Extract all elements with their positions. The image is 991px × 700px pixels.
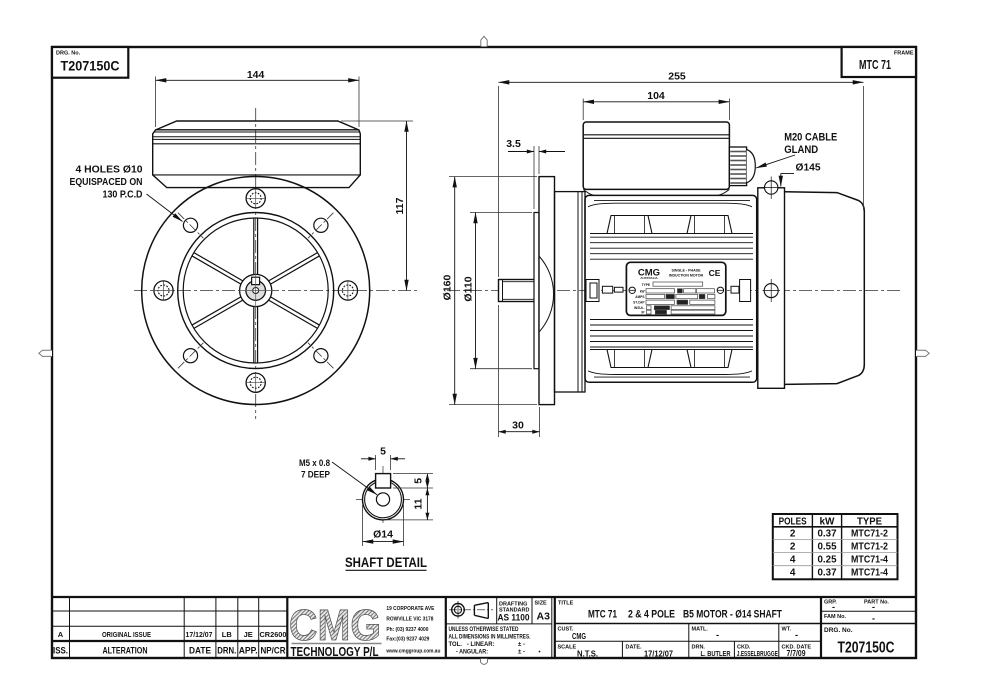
svg-text:19 CORPORATE AVE: 19 CORPORATE AVE xyxy=(386,606,434,612)
svg-text:L. BUTLER: L. BUTLER xyxy=(701,651,731,658)
svg-text:5: 5 xyxy=(380,446,386,458)
svg-text:4: 4 xyxy=(790,568,796,579)
svg-text:WT.: WT. xyxy=(782,627,792,633)
svg-text:INSUL.: INSUL. xyxy=(634,306,645,310)
svg-text:EQUISPACED ON: EQUISPACED ON xyxy=(70,177,143,188)
svg-text:ALL DIMENSIONS IN MILLIMETRES.: ALL DIMENSIONS IN MILLIMETRES. xyxy=(449,635,531,641)
svg-text:M5 x 0.8: M5 x 0.8 xyxy=(299,458,330,469)
svg-text:TOL. - LINEAR:: TOL. - LINEAR: xyxy=(449,642,495,648)
svg-text:TYPE: TYPE xyxy=(857,517,882,528)
svg-text:-: - xyxy=(872,602,875,612)
svg-text:MTC71-2: MTC71-2 xyxy=(851,529,888,540)
svg-text:104: 104 xyxy=(647,90,665,102)
svg-text:DATE.: DATE. xyxy=(626,645,643,651)
svg-text:N.T.S.: N.T.S. xyxy=(577,649,598,659)
svg-text:Ph: (03) 9237 4000: Ph: (03) 9237 4000 xyxy=(386,627,428,633)
svg-text:LB: LB xyxy=(222,630,233,639)
svg-text:B5 MOTOR - Ø14 SHAFT: B5 MOTOR - Ø14 SHAFT xyxy=(683,609,782,621)
svg-text:AS 1100: AS 1100 xyxy=(498,613,530,623)
svg-text:2 & 4 POLE: 2 & 4 POLE xyxy=(628,609,675,621)
svg-text:GRP.: GRP. xyxy=(824,600,837,606)
svg-text:POLES: POLES xyxy=(779,517,807,528)
svg-text:ALTERATION: ALTERATION xyxy=(103,646,148,657)
svg-text:PART No.: PART No. xyxy=(864,600,889,606)
svg-text:M20 CABLE: M20 CABLE xyxy=(784,132,837,144)
svg-text:Ø145: Ø145 xyxy=(796,162,821,174)
svg-text:ROWVILLE VIC 3178: ROWVILLE VIC 3178 xyxy=(386,617,433,623)
svg-text:DRG. No.: DRG. No. xyxy=(824,627,853,634)
svg-text:MTC71-2: MTC71-2 xyxy=(851,542,888,553)
svg-text:17/12/07: 17/12/07 xyxy=(186,630,213,639)
svg-text:J.ESSELBRUGGE: J.ESSELBRUGGE xyxy=(737,651,778,658)
svg-text:± -: ± - xyxy=(518,642,525,648)
svg-text:FRAME: FRAME xyxy=(894,51,914,57)
svg-text:0.55: 0.55 xyxy=(818,542,837,553)
svg-text:Ø14: Ø14 xyxy=(373,529,393,541)
svg-text:5: 5 xyxy=(413,478,425,484)
svg-text:SCALE: SCALE xyxy=(558,645,577,651)
svg-text:Ø160: Ø160 xyxy=(442,274,454,300)
svg-text:-: - xyxy=(795,630,798,641)
svg-text:Fax:(03) 9237 4029: Fax:(03) 9237 4029 xyxy=(386,637,429,643)
svg-text:MTC71-4: MTC71-4 xyxy=(851,568,888,579)
svg-text:± -: ± - xyxy=(518,650,525,656)
svg-text:A3: A3 xyxy=(537,611,551,623)
svg-text:INDUCTION MOTOR: INDUCTION MOTOR xyxy=(669,274,704,278)
svg-text:0.25: 0.25 xyxy=(818,555,837,566)
svg-text:CE: CE xyxy=(709,268,721,278)
svg-text:UNLESS OTHERWISE STATED: UNLESS OTHERWISE STATED xyxy=(449,627,520,633)
svg-text:-: - xyxy=(716,630,719,641)
svg-text:130 P.C.D: 130 P.C.D xyxy=(103,190,143,201)
svg-text:MTC 71: MTC 71 xyxy=(588,609,617,621)
svg-text:APP.: APP. xyxy=(239,646,258,657)
svg-text:144: 144 xyxy=(247,69,265,81)
svg-text:2: 2 xyxy=(790,542,796,553)
svg-text:DRG. No.: DRG. No. xyxy=(56,51,81,57)
svg-text:- ANGULAR:: - ANGULAR: xyxy=(456,650,488,656)
svg-text:CMG: CMG xyxy=(289,601,381,650)
svg-text:11: 11 xyxy=(413,498,425,509)
svg-text:-: - xyxy=(832,602,835,612)
svg-text:JE: JE xyxy=(244,630,253,639)
svg-text:0.37: 0.37 xyxy=(818,568,837,579)
svg-text:117: 117 xyxy=(394,197,406,214)
svg-text:ST.CAP: ST.CAP xyxy=(633,301,645,305)
svg-text:kW: kW xyxy=(640,289,645,293)
svg-text:AUSTRALIA: AUSTRALIA xyxy=(640,276,658,280)
svg-text:Ø110: Ø110 xyxy=(463,276,475,301)
svg-text:T207150C: T207150C xyxy=(838,640,895,657)
svg-text:CR2600: CR2600 xyxy=(260,630,287,639)
svg-text:TITLE: TITLE xyxy=(558,601,574,607)
svg-text:NP/CR: NP/CR xyxy=(261,646,286,657)
svg-text:SIZE: SIZE xyxy=(535,601,548,607)
svg-text:DATE: DATE xyxy=(189,646,211,657)
svg-text:MATL.: MATL. xyxy=(692,627,709,633)
svg-text:ISS.: ISS. xyxy=(53,646,68,657)
svg-text:4 HOLES Ø10: 4 HOLES Ø10 xyxy=(76,165,143,176)
svg-text:CMG: CMG xyxy=(572,631,586,641)
svg-text:www.cmggroup.com.au: www.cmggroup.com.au xyxy=(386,649,441,655)
svg-text:DRN.: DRN. xyxy=(692,645,706,651)
svg-text:SINGLE - PHASE: SINGLE - PHASE xyxy=(672,269,702,273)
svg-text:TECHNOLOGY P/L: TECHNOLOGY P/L xyxy=(291,645,379,659)
svg-text:FAM No.: FAM No. xyxy=(824,614,846,620)
svg-text:4: 4 xyxy=(790,555,796,566)
svg-text:MTC71-4: MTC71-4 xyxy=(851,555,888,566)
svg-text:3.5: 3.5 xyxy=(506,138,521,150)
svg-text:DRN.: DRN. xyxy=(217,646,236,657)
svg-text:17/12/07: 17/12/07 xyxy=(644,649,673,659)
svg-text:TYPE: TYPE xyxy=(642,283,650,287)
svg-text:MTC 71: MTC 71 xyxy=(859,58,891,72)
svg-text:-: - xyxy=(872,614,875,624)
svg-text:2: 2 xyxy=(790,529,796,540)
svg-text:255: 255 xyxy=(668,70,686,82)
svg-text:ORIGINAL ISSUE: ORIGINAL ISSUE xyxy=(102,630,151,639)
svg-text:T207150C: T207150C xyxy=(61,58,120,74)
svg-text:0.37: 0.37 xyxy=(818,529,837,540)
svg-text:GLAND: GLAND xyxy=(784,144,818,156)
svg-text:AMPS: AMPS xyxy=(635,295,644,299)
svg-text:7/7/09: 7/7/09 xyxy=(787,649,806,658)
svg-text:30: 30 xyxy=(512,420,524,432)
svg-text:7 DEEP: 7 DEEP xyxy=(301,470,331,481)
svg-text:SHAFT DETAIL: SHAFT DETAIL xyxy=(345,555,427,570)
svg-text:kW: kW xyxy=(820,517,836,528)
svg-text:CKD.: CKD. xyxy=(737,645,751,651)
svg-text:A: A xyxy=(58,630,64,639)
